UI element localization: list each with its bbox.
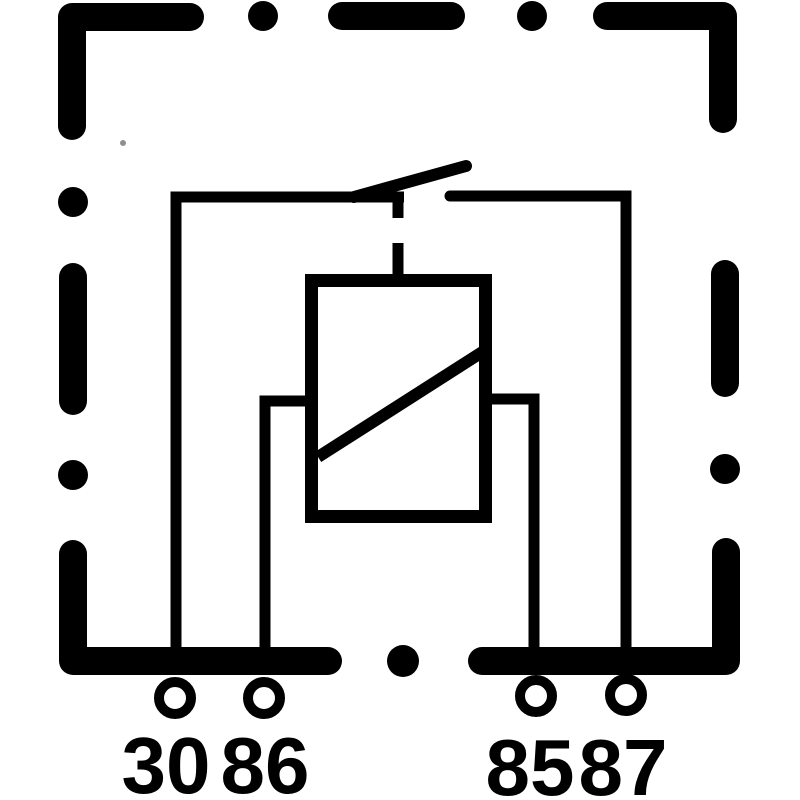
housing-dot-icon (248, 1, 278, 31)
terminal-label-30: 30 (122, 721, 211, 800)
housing-dot-icon (58, 460, 88, 490)
scan-artifact-dot (120, 140, 126, 146)
housing-dot-icon (387, 645, 419, 677)
relay-schematic-canvas: 30 86 85 87 (0, 0, 800, 800)
housing-dot-icon (710, 454, 740, 484)
terminal-pin-86 (248, 682, 280, 714)
relay-wiring-diagram: 30 86 85 87 (0, 0, 800, 800)
terminal-label-85: 85 (486, 723, 575, 800)
terminal-pin-85 (520, 680, 552, 712)
housing-dot-icon (517, 1, 547, 31)
housing-dot-icon (58, 187, 88, 217)
terminal-pin-30 (159, 682, 191, 714)
terminal-label-87: 87 (579, 723, 668, 800)
terminal-pin-87 (610, 679, 642, 711)
terminal-label-86: 86 (221, 721, 310, 800)
